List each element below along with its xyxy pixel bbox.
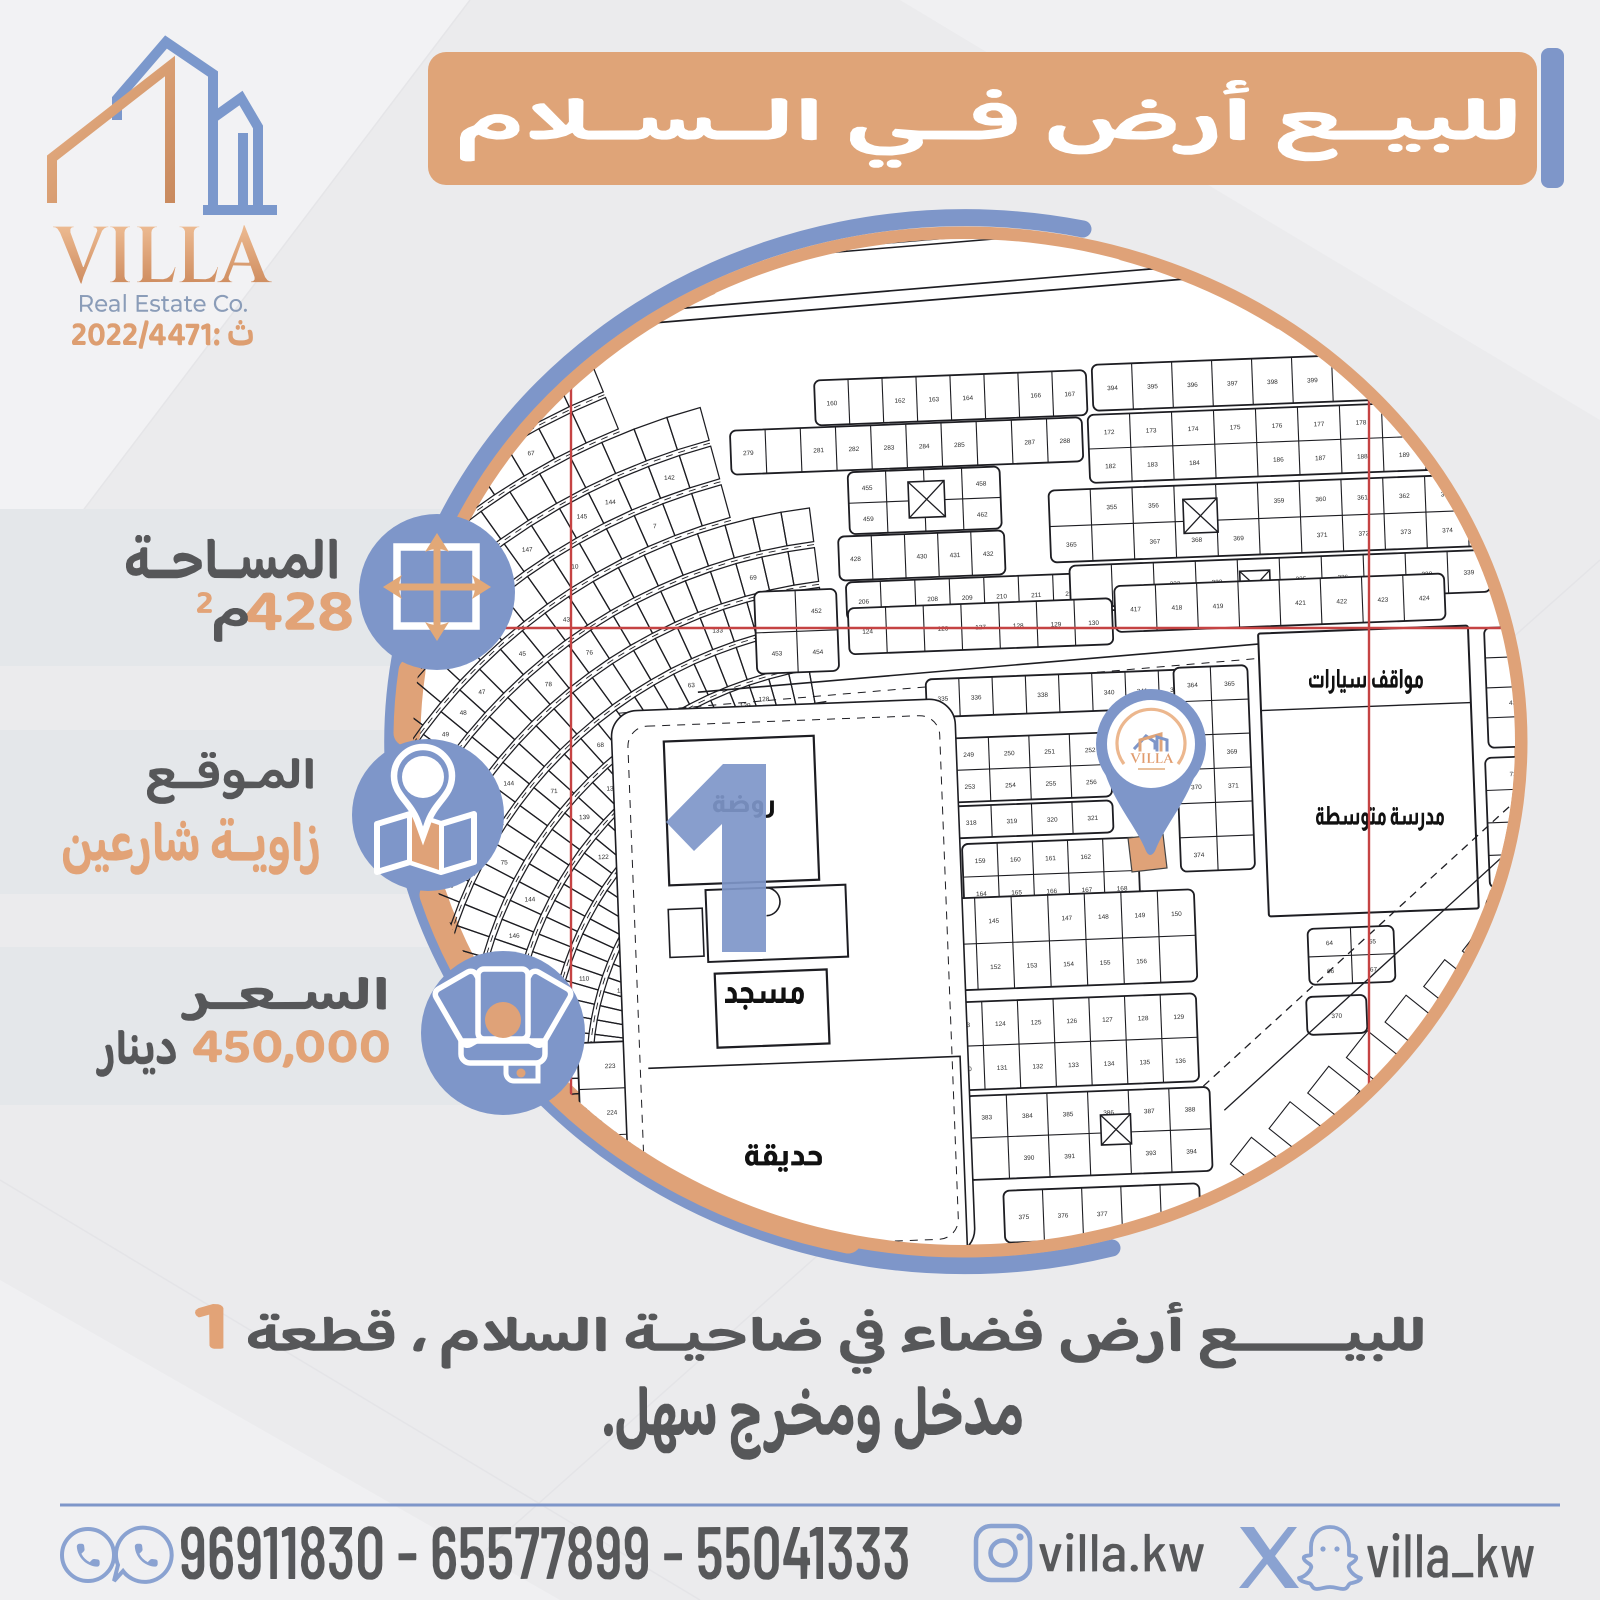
- svg-text:162: 162: [1080, 854, 1091, 861]
- svg-text:64: 64: [1326, 940, 1334, 947]
- svg-text:396: 396: [1187, 382, 1198, 389]
- svg-text:48: 48: [460, 710, 468, 717]
- svg-text:124: 124: [995, 1021, 1006, 1028]
- svg-text:175: 175: [1230, 424, 1241, 431]
- svg-text:376: 376: [1058, 1212, 1069, 1219]
- svg-text:69: 69: [749, 574, 757, 581]
- svg-text:321: 321: [1087, 815, 1098, 822]
- svg-text:156: 156: [1136, 958, 1147, 965]
- svg-text:129: 129: [1173, 1014, 1184, 1021]
- svg-text:45: 45: [519, 651, 527, 658]
- svg-text:206: 206: [858, 599, 869, 606]
- svg-text:359: 359: [1274, 498, 1285, 505]
- svg-text:224: 224: [607, 1109, 618, 1116]
- svg-text:397: 397: [1227, 380, 1238, 387]
- svg-text:455: 455: [862, 485, 873, 492]
- svg-text:384: 384: [1022, 1113, 1033, 1120]
- svg-text:417: 417: [1130, 606, 1141, 613]
- svg-text:462: 462: [977, 511, 988, 518]
- svg-text:159: 159: [975, 858, 986, 865]
- svg-text:336: 336: [971, 694, 982, 701]
- svg-text:374: 374: [1194, 852, 1205, 859]
- svg-text:454: 454: [812, 649, 823, 656]
- svg-text:370: 370: [1191, 784, 1202, 791]
- svg-text:318: 318: [966, 820, 977, 827]
- svg-text:430: 430: [916, 553, 927, 560]
- svg-text:390: 390: [1024, 1155, 1035, 1162]
- svg-text:110: 110: [579, 975, 590, 982]
- svg-text:160: 160: [1010, 856, 1021, 863]
- svg-text:249: 249: [963, 752, 974, 759]
- svg-text:154: 154: [1063, 961, 1074, 968]
- svg-text:288: 288: [1059, 438, 1070, 445]
- svg-text:145: 145: [988, 918, 999, 925]
- svg-text:254: 254: [1005, 782, 1016, 789]
- svg-text:71: 71: [550, 788, 558, 795]
- svg-text:394: 394: [1107, 385, 1118, 392]
- svg-text:186: 186: [1273, 457, 1284, 464]
- svg-text:399: 399: [1307, 377, 1318, 384]
- svg-text:361: 361: [1357, 494, 1368, 501]
- svg-text:144: 144: [503, 780, 514, 787]
- svg-text:365: 365: [1224, 681, 1235, 688]
- svg-text:373: 373: [1400, 529, 1411, 536]
- svg-text:128: 128: [1138, 1015, 1149, 1022]
- svg-text:339: 339: [1463, 569, 1474, 576]
- svg-text:155: 155: [1100, 960, 1111, 967]
- svg-text:126: 126: [937, 626, 948, 633]
- svg-text:76: 76: [586, 649, 594, 656]
- svg-text:364: 364: [1187, 682, 1198, 689]
- svg-text:160: 160: [826, 400, 837, 407]
- svg-text:161: 161: [1045, 855, 1056, 862]
- svg-text:164: 164: [962, 395, 973, 402]
- svg-text:132: 132: [1032, 1063, 1043, 1070]
- svg-text:209: 209: [962, 595, 973, 602]
- svg-text:184: 184: [1189, 460, 1200, 467]
- svg-text:428: 428: [850, 556, 861, 563]
- svg-text:183: 183: [1147, 461, 1158, 468]
- svg-text:133: 133: [1068, 1062, 1079, 1069]
- svg-text:167: 167: [1064, 391, 1075, 398]
- svg-text:394: 394: [1186, 1148, 1197, 1155]
- svg-text:130: 130: [1088, 620, 1099, 627]
- svg-text:128: 128: [759, 696, 770, 703]
- svg-text:162: 162: [894, 397, 905, 404]
- svg-text:422: 422: [1336, 598, 1347, 605]
- svg-text:250: 250: [1004, 750, 1015, 757]
- svg-text:134: 134: [1104, 1060, 1115, 1067]
- svg-text:371: 371: [1228, 782, 1239, 789]
- svg-text:122: 122: [598, 854, 609, 861]
- svg-text:47: 47: [478, 689, 486, 696]
- svg-text:178: 178: [1356, 419, 1367, 426]
- svg-text:68: 68: [597, 742, 605, 749]
- svg-text:387: 387: [1144, 1108, 1155, 1115]
- svg-text:368: 368: [1191, 537, 1202, 544]
- svg-text:452: 452: [811, 608, 822, 615]
- svg-text:150: 150: [1171, 911, 1182, 918]
- svg-text:126: 126: [1066, 1018, 1077, 1025]
- svg-text:388: 388: [1185, 1106, 1196, 1113]
- svg-text:147: 147: [522, 546, 533, 553]
- svg-text:189: 189: [1399, 452, 1410, 459]
- svg-text:391: 391: [1064, 1153, 1075, 1160]
- svg-text:135: 135: [1139, 1059, 1150, 1066]
- svg-text:355: 355: [1106, 504, 1117, 511]
- svg-text:375: 375: [1018, 1214, 1029, 1221]
- svg-text:338: 338: [1037, 692, 1048, 699]
- svg-text:398: 398: [1267, 379, 1278, 386]
- svg-text:144: 144: [605, 499, 616, 506]
- svg-text:149: 149: [1134, 912, 1145, 919]
- svg-text:365: 365: [1066, 542, 1077, 549]
- svg-text:369: 369: [1233, 535, 1244, 542]
- svg-text:188: 188: [1357, 453, 1368, 460]
- svg-text:166: 166: [1030, 392, 1041, 399]
- svg-text:139: 139: [579, 814, 590, 821]
- svg-text:67: 67: [1370, 966, 1378, 973]
- svg-text:177: 177: [1314, 421, 1325, 428]
- svg-text:124: 124: [862, 628, 873, 635]
- svg-text:395: 395: [1147, 383, 1158, 390]
- svg-text:127: 127: [1102, 1016, 1113, 1023]
- svg-text:163: 163: [928, 396, 939, 403]
- svg-text:153: 153: [1027, 962, 1038, 969]
- svg-text:283: 283: [884, 444, 895, 451]
- svg-text:360: 360: [1315, 496, 1326, 503]
- svg-text:431: 431: [950, 552, 961, 559]
- svg-text:423: 423: [1378, 597, 1389, 604]
- svg-text:131: 131: [997, 1065, 1008, 1072]
- svg-text:374: 374: [1442, 527, 1453, 534]
- svg-text:43: 43: [563, 617, 571, 624]
- svg-text:367: 367: [1149, 538, 1160, 545]
- svg-text:211: 211: [1031, 592, 1042, 599]
- svg-text:320: 320: [1047, 816, 1058, 823]
- svg-text:282: 282: [848, 446, 859, 453]
- svg-text:223: 223: [605, 1063, 616, 1070]
- svg-text:136: 136: [1175, 1058, 1186, 1065]
- svg-text:49: 49: [442, 731, 450, 738]
- svg-text:173: 173: [1146, 427, 1157, 434]
- svg-text:145: 145: [577, 513, 588, 520]
- svg-text:383: 383: [981, 1114, 992, 1121]
- svg-text:125: 125: [1031, 1019, 1042, 1026]
- svg-text:182: 182: [1105, 463, 1116, 470]
- svg-text:319: 319: [1006, 818, 1017, 825]
- svg-text:362: 362: [1399, 493, 1410, 500]
- svg-text:458: 458: [976, 480, 987, 487]
- svg-text:424: 424: [1419, 595, 1430, 602]
- svg-text:285: 285: [954, 442, 965, 449]
- svg-text:255: 255: [1045, 780, 1056, 787]
- svg-text:251: 251: [1044, 749, 1055, 756]
- svg-text:385: 385: [1063, 1111, 1074, 1118]
- svg-text:340: 340: [1104, 689, 1115, 696]
- svg-text:284: 284: [919, 443, 930, 450]
- svg-text:147: 147: [1061, 915, 1072, 922]
- svg-text:148: 148: [1098, 914, 1109, 921]
- svg-text:281: 281: [813, 447, 824, 454]
- svg-text:371: 371: [1317, 532, 1328, 539]
- svg-text:75: 75: [501, 859, 509, 866]
- svg-text:187: 187: [1315, 455, 1326, 462]
- svg-text:63: 63: [688, 682, 696, 689]
- svg-text:208: 208: [927, 596, 938, 603]
- svg-text:78: 78: [545, 681, 553, 688]
- svg-text:252: 252: [1085, 747, 1096, 754]
- svg-text:174: 174: [1188, 426, 1199, 433]
- svg-text:256: 256: [1086, 779, 1097, 786]
- svg-text:356: 356: [1148, 502, 1159, 509]
- svg-text:210: 210: [996, 593, 1007, 600]
- svg-text:287: 287: [1024, 439, 1035, 446]
- svg-text:176: 176: [1272, 423, 1283, 430]
- svg-text:172: 172: [1104, 429, 1115, 436]
- svg-text:279: 279: [743, 450, 754, 457]
- svg-text:377: 377: [1097, 1211, 1108, 1218]
- svg-text:253: 253: [964, 784, 975, 791]
- svg-text:370: 370: [1331, 1013, 1342, 1020]
- svg-text:421: 421: [1295, 600, 1306, 607]
- svg-text:10: 10: [571, 563, 579, 570]
- svg-text:146: 146: [509, 933, 520, 940]
- svg-text:142: 142: [664, 475, 675, 482]
- svg-text:144: 144: [524, 896, 535, 903]
- svg-text:459: 459: [863, 516, 874, 523]
- svg-text:418: 418: [1171, 605, 1182, 612]
- svg-text:369: 369: [1227, 748, 1238, 755]
- svg-text:432: 432: [983, 551, 994, 558]
- svg-text:152: 152: [990, 964, 1001, 971]
- svg-text:393: 393: [1145, 1150, 1156, 1157]
- svg-text:67: 67: [527, 450, 535, 457]
- svg-text:419: 419: [1213, 603, 1224, 610]
- svg-text:453: 453: [772, 650, 783, 657]
